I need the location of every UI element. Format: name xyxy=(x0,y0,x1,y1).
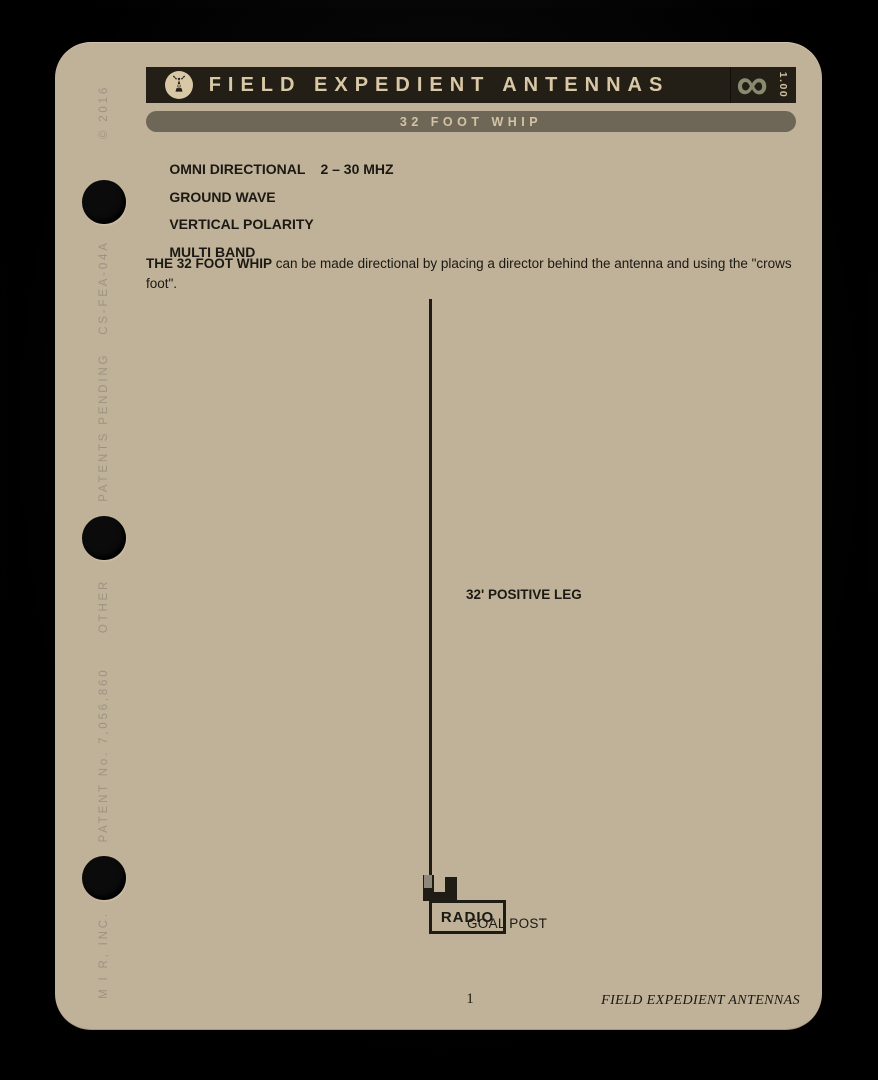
spine-company-text: M I R, INC. xyxy=(98,911,110,999)
spec-value: 2 – 30 MHZ xyxy=(320,161,393,177)
page-background: © 2016 PATENTS PENDING CS-FEA-04A OTHER … xyxy=(0,0,878,1080)
positive-leg-label: 32' POSITIVE LEG xyxy=(466,587,582,602)
spine-patents-pending-text: PATENTS PENDING CS-FEA-04A xyxy=(98,240,110,501)
punch-hole-bottom xyxy=(82,856,126,900)
antenna-wire-line xyxy=(429,299,432,877)
page-title: FIELD EXPEDIENT ANTENNAS xyxy=(202,67,676,103)
section-title-bar: 32 FOOT WHIP xyxy=(146,111,796,132)
description-lead: THE 32 FOOT WHIP xyxy=(146,256,272,271)
antenna-tower-icon xyxy=(165,71,193,99)
goal-post-shape xyxy=(423,875,457,901)
header-bar: FIELD EXPEDIENT ANTENNAS ∞ 1.00 xyxy=(146,67,796,103)
goal-post-wire-connector xyxy=(424,875,432,888)
spine-other-text: OTHER xyxy=(98,579,110,633)
description-paragraph: THE 32 FOOT WHIP can be made directional… xyxy=(146,254,802,294)
spine-copyright-text: © 2016 xyxy=(98,85,110,139)
footer-book-title: FIELD EXPEDIENT ANTENNAS xyxy=(601,993,800,1009)
reference-card-page: © 2016 PATENTS PENDING CS-FEA-04A OTHER … xyxy=(55,42,822,1030)
punch-hole-top xyxy=(82,180,126,224)
section-title: 32 FOOT WHIP xyxy=(400,115,542,129)
radio-box: RADIO xyxy=(429,900,506,934)
page-number: 1 xyxy=(455,991,485,1008)
version-label: 1.00 xyxy=(765,74,801,96)
spine-patent-number-text: PATENT No. 7,056,860 xyxy=(98,668,110,843)
goal-post-right-post xyxy=(445,877,457,901)
header-divider xyxy=(730,67,731,103)
punch-hole-middle xyxy=(82,516,126,560)
radio-label: RADIO xyxy=(441,909,494,926)
